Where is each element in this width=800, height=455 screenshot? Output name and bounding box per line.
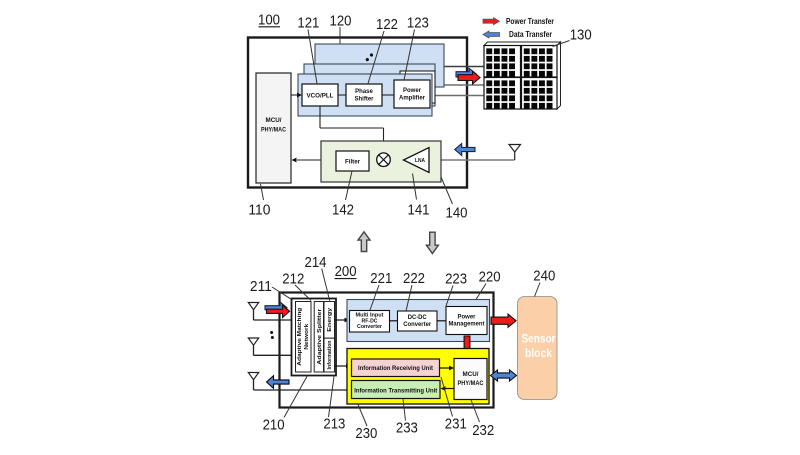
svg-text:221: 221 [370,271,392,287]
svg-text:Data Transfer: Data Transfer [509,30,552,39]
svg-text:123: 123 [407,16,429,32]
svg-text:Sensor: Sensor [522,334,556,346]
svg-text:130: 130 [570,28,592,44]
svg-text:Filter: Filter [345,159,360,166]
svg-text:Converter: Converter [403,322,432,328]
svg-text:140: 140 [446,206,468,222]
svg-text:212: 212 [282,272,304,288]
svg-text:120: 120 [330,13,352,29]
svg-text:214: 214 [305,255,327,271]
svg-text:Information Receiving Unit: Information Receiving Unit [358,365,434,372]
svg-text:Converter: Converter [357,324,383,330]
svg-text:100: 100 [258,13,280,29]
svg-text:VCO/PLL: VCO/PLL [307,93,334,100]
svg-text:230: 230 [355,426,377,442]
svg-text:block: block [525,348,553,360]
svg-text:Power: Power [403,88,422,94]
svg-text:233: 233 [396,421,418,437]
svg-text:Amplifier: Amplifier [399,96,426,102]
svg-text:Power Transfer: Power Transfer [506,17,554,26]
svg-text:MCU/: MCU/ [266,117,282,124]
svg-text:PHY/MAC: PHY/MAC [458,380,484,387]
svg-text:Information: Information [327,341,333,370]
svg-text:220: 220 [479,270,501,286]
svg-text:MCU/: MCU/ [463,371,479,378]
svg-text:231: 231 [445,417,467,433]
svg-text:Adaptive Splitter: Adaptive Splitter [317,308,323,365]
svg-text:Network: Network [304,323,310,350]
svg-text:122: 122 [376,17,398,33]
svg-text:211: 211 [250,279,272,295]
svg-text:210: 210 [263,418,285,434]
svg-text:Shifter: Shifter [354,97,374,103]
svg-text:110: 110 [248,203,270,219]
svg-text:Phase: Phase [355,89,373,95]
svg-text:213: 213 [323,417,345,433]
svg-text:223: 223 [445,272,467,288]
svg-text:121: 121 [297,16,319,32]
svg-text:PHY/MAC: PHY/MAC [261,127,286,134]
svg-text:222: 222 [403,271,425,287]
svg-text:Information Transmitting Unit: Information Transmitting Unit [354,388,438,395]
svg-text:Adaptive Matching: Adaptive Matching [297,307,303,366]
svg-text:232: 232 [472,423,494,439]
svg-text:142: 142 [332,203,354,219]
svg-text:141: 141 [408,203,430,219]
svg-text:240: 240 [533,269,555,285]
svg-text:Power: Power [458,314,477,320]
svg-text:200: 200 [335,264,357,280]
svg-text:Energy: Energy [327,307,333,332]
svg-text:LNA: LNA [415,158,425,164]
svg-text:Management: Management [449,322,485,328]
svg-text:DC-DC: DC-DC [408,315,428,321]
